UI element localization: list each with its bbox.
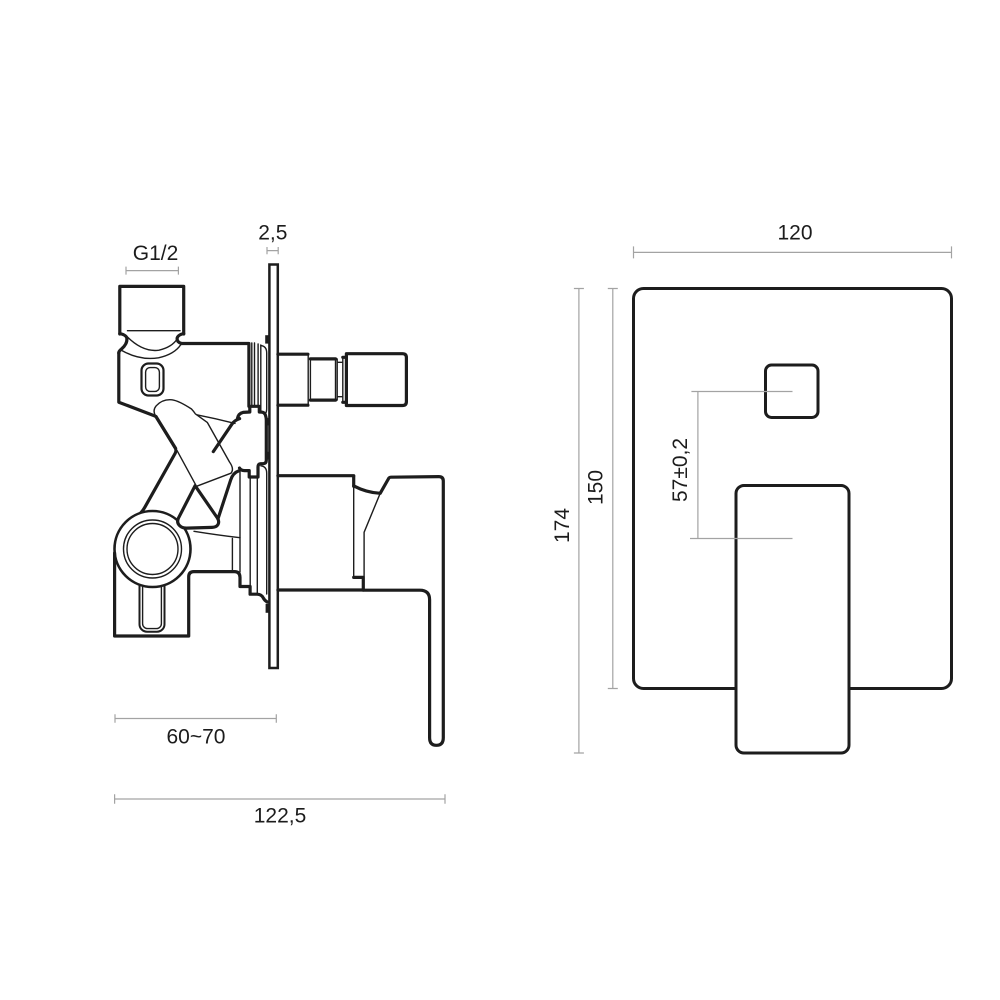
svg-text:120: 120 [777, 222, 812, 245]
svg-text:2,5: 2,5 [258, 222, 287, 245]
svg-text:122,5: 122,5 [254, 805, 307, 828]
svg-text:57±0,2: 57±0,2 [669, 438, 692, 502]
svg-text:174: 174 [551, 508, 574, 543]
svg-text:150: 150 [585, 470, 608, 505]
svg-text:60~70: 60~70 [167, 726, 226, 749]
svg-text:G1/2: G1/2 [133, 242, 179, 265]
